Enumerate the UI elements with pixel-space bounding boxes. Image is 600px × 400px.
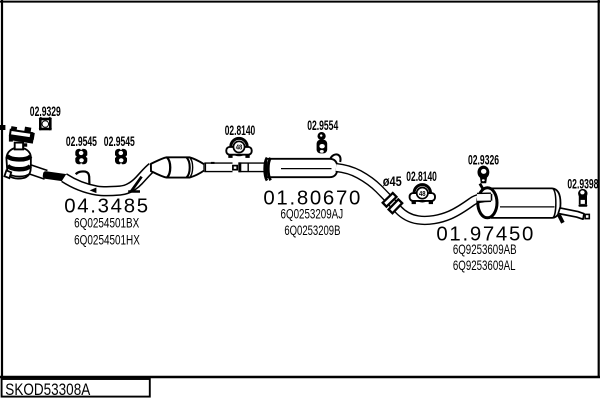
svg-text:6Q0254501BX: 6Q0254501BX [74, 215, 139, 231]
svg-text:02.8140: 02.8140 [406, 169, 437, 185]
svg-text:02.9554: 02.9554 [307, 118, 338, 134]
svg-text:6Q0254501HX: 6Q0254501HX [74, 232, 140, 248]
svg-text:6Q0253209AJ: 6Q0253209AJ [281, 206, 344, 222]
svg-text:02.9545: 02.9545 [66, 134, 97, 150]
svg-text:6Q0253209B: 6Q0253209B [284, 222, 340, 238]
svg-text:02.8140: 02.8140 [225, 123, 256, 139]
svg-text:02.9545: 02.9545 [104, 134, 135, 150]
svg-text:SKOD53308A: SKOD53308A [5, 381, 91, 400]
svg-text:6Q9253609AL: 6Q9253609AL [453, 257, 516, 273]
svg-text:48: 48 [236, 144, 243, 152]
svg-text:02.9329: 02.9329 [30, 104, 61, 120]
svg-text:6Q9253609AB: 6Q9253609AB [453, 241, 517, 257]
svg-text:ø45: ø45 [383, 174, 402, 190]
